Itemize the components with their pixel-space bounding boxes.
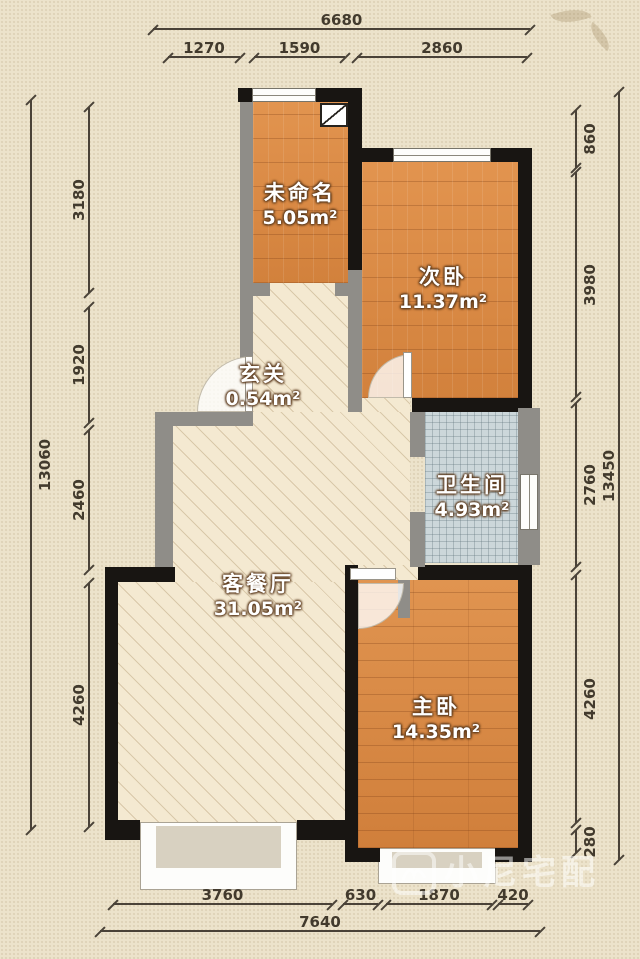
dim-bottom-total: 7640 xyxy=(100,930,540,932)
dim-top-segment: 1590 xyxy=(254,56,345,58)
dim-top-total: 6680 xyxy=(153,28,530,30)
dim-right-segment: 280 xyxy=(575,830,577,853)
dim-right-total: 13450 xyxy=(618,92,620,860)
dim-right-segment: 2760 xyxy=(575,403,577,567)
room-name: 主卧 xyxy=(392,694,480,720)
window-unnamed-room xyxy=(252,88,316,102)
dim-left-segment: 1920 xyxy=(88,307,90,423)
dim-label: 13450 xyxy=(600,450,618,502)
dim-label: 1270 xyxy=(183,39,225,57)
dim-label: 2860 xyxy=(421,39,463,57)
leaf-decoration xyxy=(550,2,591,30)
dim-left-segment: 4260 xyxy=(88,583,90,827)
flue-shaft-icon xyxy=(320,103,348,127)
room-label-bathroom: 卫生间 4.93m² xyxy=(435,472,510,522)
dim-bottom-segment: 630 xyxy=(343,903,378,905)
dim-right-segment: 4260 xyxy=(575,575,577,823)
dim-label: 1590 xyxy=(279,39,321,57)
floor-living-middle xyxy=(173,412,410,582)
dim-label: 13060 xyxy=(36,439,54,491)
room-label-master-bedroom: 主卧 14.35m² xyxy=(392,694,480,744)
room-label-unnamed: 未命名 5.05m² xyxy=(263,180,338,230)
watermark-text: 小尼宅配 xyxy=(444,855,600,891)
wall-bottom-master-left xyxy=(345,848,380,862)
dim-top-segment: 2860 xyxy=(357,56,527,58)
bay-window-living-panel xyxy=(154,824,283,870)
window-bathroom xyxy=(520,474,538,530)
wall-between-unnamed-bedroom xyxy=(348,88,362,270)
door-leaf-master-bedroom xyxy=(350,568,396,580)
dim-label: 2460 xyxy=(70,479,88,521)
door-leaf-second-bedroom xyxy=(403,352,412,398)
wall-bathroom-left-lower xyxy=(410,512,425,567)
dim-label: 3760 xyxy=(202,886,244,904)
window-second-bedroom xyxy=(393,148,491,162)
room-label-living-dining: 客餐厅 31.05m² xyxy=(214,571,302,621)
wall-bottom-second-bedroom xyxy=(412,398,532,412)
room-area: 4.93m² xyxy=(435,498,510,522)
wall-bottom-unnamed-left xyxy=(240,283,270,296)
room-name: 客餐厅 xyxy=(214,571,302,597)
room-area: 14.35m² xyxy=(392,720,480,744)
dim-bottom-segment: 420 xyxy=(498,903,528,905)
dim-label: 3980 xyxy=(581,264,599,306)
dim-label: 3180 xyxy=(70,179,88,221)
dim-label: 4260 xyxy=(70,684,88,726)
wall-left-master-bedroom xyxy=(345,565,358,862)
leaf-decoration xyxy=(584,22,615,51)
floor-doorway-patch xyxy=(358,398,410,412)
dim-label: 1920 xyxy=(70,344,88,386)
wall-bathroom-left-upper xyxy=(410,412,425,457)
room-name: 卫生间 xyxy=(435,472,510,498)
room-name: 玄关 xyxy=(226,361,301,387)
room-label-second-bedroom: 次卧 11.37m² xyxy=(399,264,487,314)
room-area: 0.54m² xyxy=(226,387,301,411)
watermark: 小尼宅配 xyxy=(392,851,600,895)
wall-bottom-unnamed-right xyxy=(335,283,348,296)
dim-label: 630 xyxy=(345,886,376,904)
floor-plan-canvas: 未命名 5.05m² 次卧 11.37m² 玄关 0.54m² 卫生间 4.93… xyxy=(0,0,640,959)
dim-label: 2760 xyxy=(581,464,599,506)
dim-right-segment: 860 xyxy=(575,110,577,168)
dim-label: 6680 xyxy=(321,11,363,29)
room-area: 11.37m² xyxy=(399,290,487,314)
dim-label: 860 xyxy=(581,123,599,154)
dim-left-segment: 3180 xyxy=(88,107,90,293)
room-name: 未命名 xyxy=(263,180,338,206)
wall-right-lower xyxy=(518,563,532,862)
wall-corridor-right xyxy=(348,270,362,412)
wall-living-left-upper xyxy=(155,412,173,567)
dim-right-segment: 3980 xyxy=(575,172,577,397)
dim-left-segment: 2460 xyxy=(88,430,90,570)
dim-label: 7640 xyxy=(299,913,341,931)
room-label-entry: 玄关 0.54m² xyxy=(226,361,301,411)
wall-left-lower xyxy=(105,567,118,840)
wall-entry-left xyxy=(240,296,253,358)
watermark-logo-icon xyxy=(392,851,436,895)
dim-top-segment: 1270 xyxy=(168,56,240,58)
wall-bottom-living-right xyxy=(297,820,345,840)
wall-step-left xyxy=(105,567,175,582)
room-area: 31.05m² xyxy=(214,597,302,621)
wall-left-unnamed xyxy=(240,102,253,296)
wall-top-master-bedroom xyxy=(418,565,532,580)
dim-bottom-segment: 3760 xyxy=(113,903,332,905)
dim-left-total: 13060 xyxy=(30,100,32,830)
dim-label: 4260 xyxy=(581,678,599,720)
room-area: 5.05m² xyxy=(263,206,338,230)
dim-bottom-segment: 1870 xyxy=(386,903,492,905)
room-name: 次卧 xyxy=(399,264,487,290)
wall-right-upper xyxy=(518,148,532,410)
